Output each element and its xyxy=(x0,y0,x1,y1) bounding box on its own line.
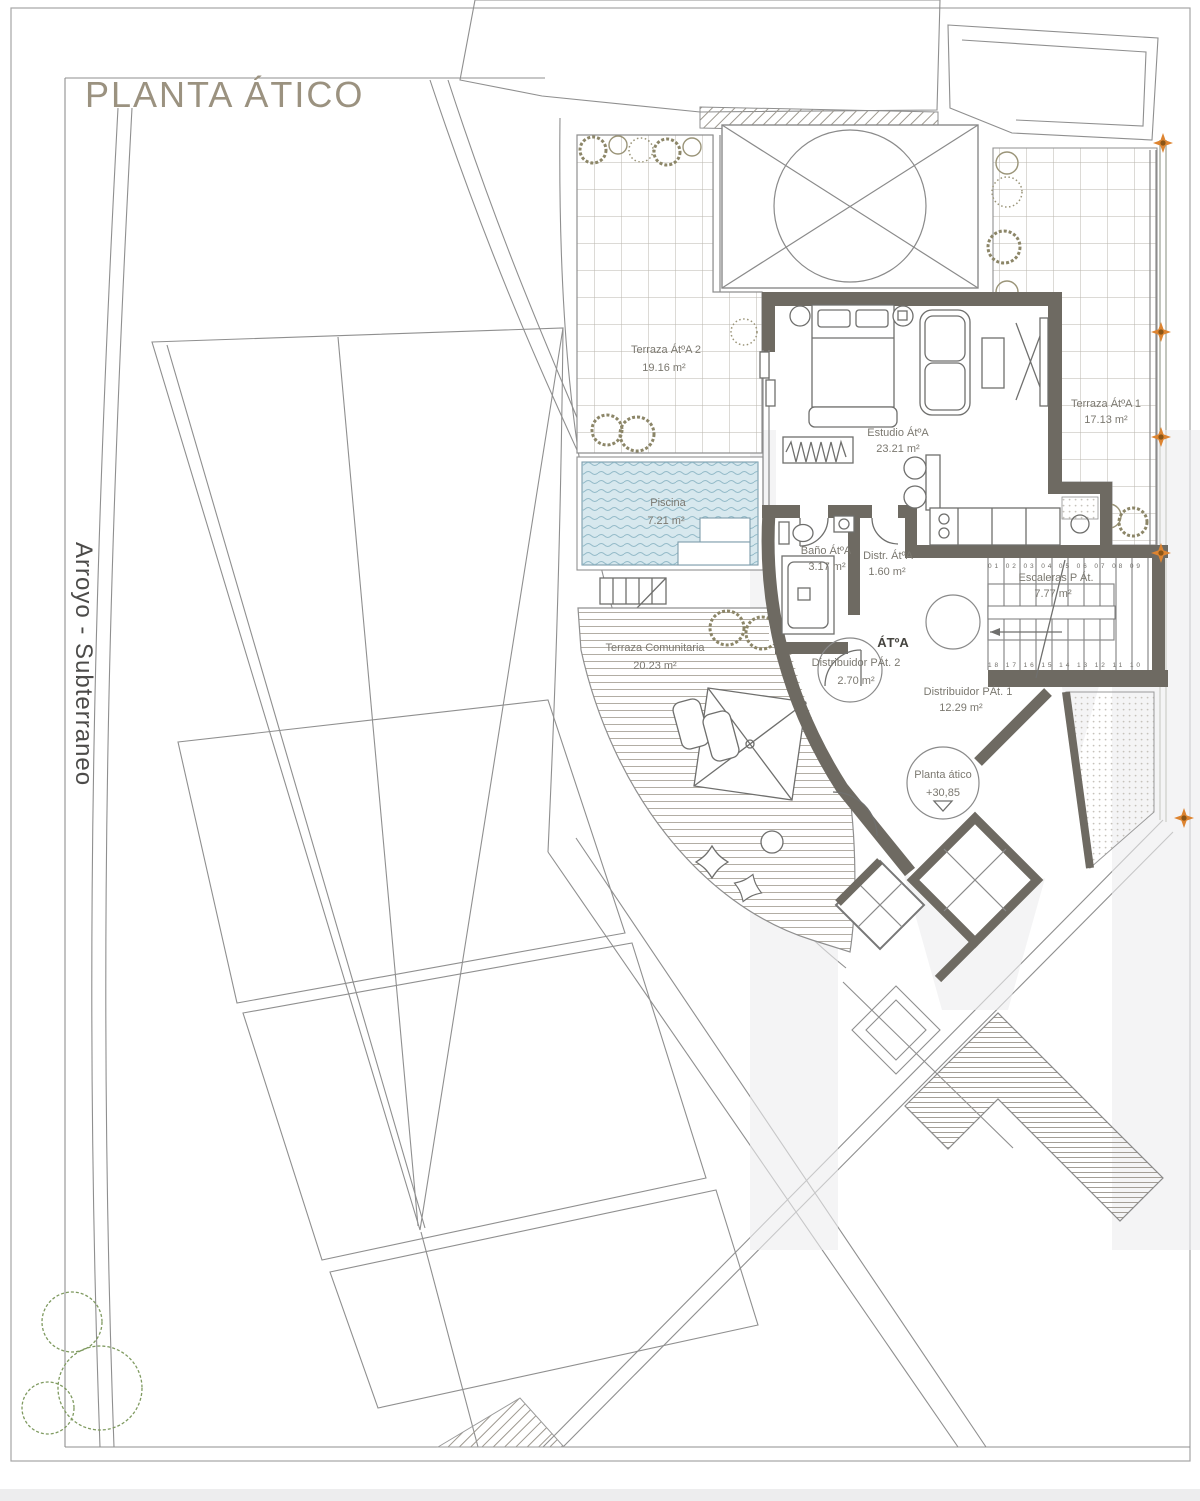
tree xyxy=(22,1292,142,1434)
side-table xyxy=(982,338,1004,388)
terrace1-area: 17.13 m² xyxy=(1084,414,1128,426)
level-value: +30,85 xyxy=(926,787,960,799)
sliding-door-leaf xyxy=(766,380,775,406)
floor-plan-page: Terraza ÁtºA 2 19.16 m² Piscina 7.21 m² xyxy=(0,0,1200,1501)
terrace2-name: Terraza ÁtºA 2 xyxy=(631,343,701,356)
distributor2-name: Distribuidor PÁt. 2 xyxy=(812,656,901,669)
studio-name: Estudio ÁtºA xyxy=(867,426,929,439)
unit-tag: ÁTºA xyxy=(877,635,909,650)
bathroom-name: Baño ÁtºA xyxy=(801,544,852,557)
pool-step xyxy=(700,518,750,542)
studio-area: 23.21 m² xyxy=(876,443,920,455)
community-terrace-area: 20.23 m² xyxy=(633,660,677,672)
radiator xyxy=(783,437,853,463)
skylight-shaft xyxy=(713,125,978,292)
distr-area: 1.60 m² xyxy=(868,566,906,578)
distributor1-area: 12.29 m² xyxy=(939,702,983,714)
page-title: PLANTA ÁTICO xyxy=(85,74,364,115)
community-terrace-name: Terraza Comunitaria xyxy=(605,642,705,654)
stairs-area: 7.77 m² xyxy=(1034,588,1072,600)
washbasin xyxy=(834,516,854,532)
deck-table xyxy=(761,831,783,853)
sofa xyxy=(920,310,970,415)
nightstand xyxy=(790,306,810,326)
neighbour-buildings xyxy=(460,0,1158,140)
distr-name: Distr. ÁtºA xyxy=(863,549,914,562)
pool-name: Piscina xyxy=(650,497,686,509)
distributor2-area: 2.70 m² xyxy=(837,675,875,687)
level-floor-label: Planta ático xyxy=(914,769,971,781)
terrace1-name: Terraza ÁtºA 1 xyxy=(1071,397,1141,410)
bathroom-area: 3.17 m² xyxy=(808,561,846,573)
street-label: Arroyo - Subterraneo xyxy=(70,542,97,786)
bed xyxy=(809,305,897,427)
terrace2-area: 19.16 m² xyxy=(642,362,686,374)
stairs-name: Escaleras P Át. xyxy=(1019,571,1094,584)
pool-area: 7.21 m² xyxy=(647,515,685,527)
floor-plan-canvas: Terraza ÁtºA 2 19.16 m² Piscina 7.21 m² xyxy=(0,0,1200,1501)
nightstand xyxy=(893,306,913,326)
sliding-door-leaf xyxy=(760,352,769,378)
distributor1-name: Distribuidor PÁt. 1 xyxy=(924,685,1013,698)
pool-step xyxy=(678,542,750,565)
pool: Piscina 7.21 m² xyxy=(577,457,763,570)
